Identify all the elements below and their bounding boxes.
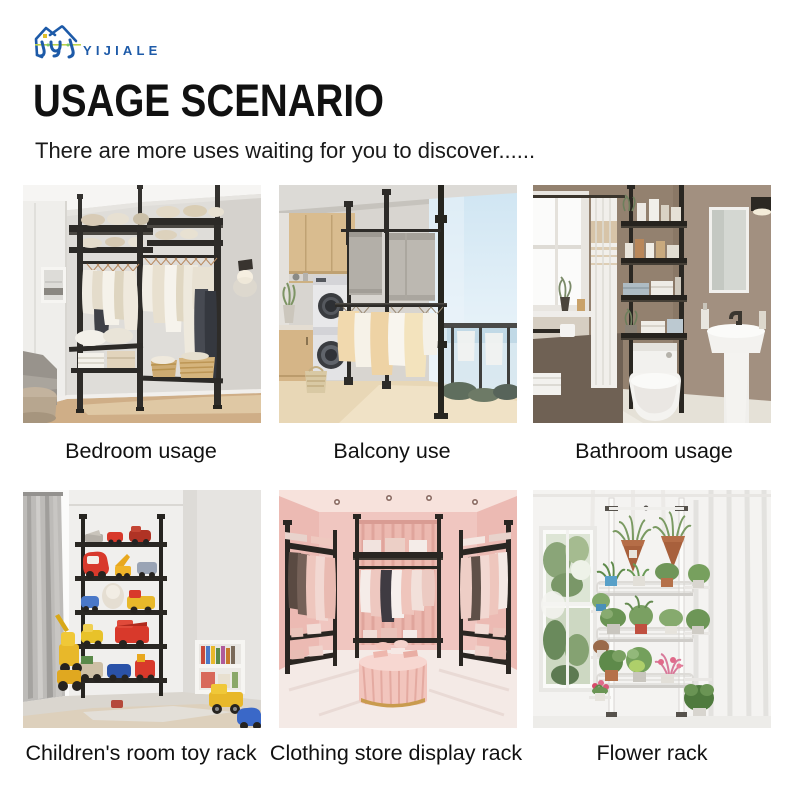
svg-text:YIJIALE: YIJIALE bbox=[83, 43, 162, 58]
